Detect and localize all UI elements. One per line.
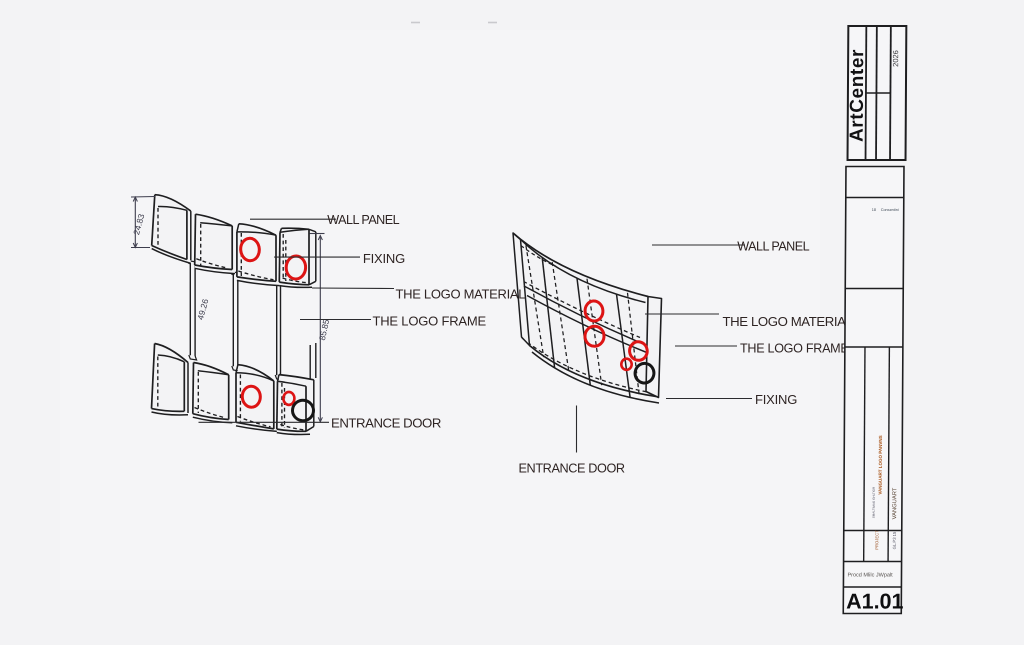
svg-text:SMALTIMAG GHLTIGR: SMALTIMAG GHLTIGR — [872, 486, 876, 518]
svg-text:GL.P3 15: GL.P3 15 — [892, 531, 897, 549]
svg-text:2026: 2026 — [891, 50, 900, 67]
svg-text:FIXING: FIXING — [363, 251, 405, 266]
svg-text:A1.01: A1.01 — [846, 590, 904, 614]
svg-text:ENTRANCE DOOR: ENTRANCE DOOR — [331, 415, 441, 430]
svg-text:THE LOGO MATERIAL: THE LOGO MATERIAL — [396, 286, 526, 301]
svg-text:WALL PANEL: WALL PANEL — [327, 213, 399, 227]
svg-text:THE LOGO MATERIAL: THE LOGO MATERIAL — [723, 314, 853, 329]
svg-text:18: 18 — [872, 208, 876, 212]
svg-text:ENTRANCE DOOR: ENTRANCE DOOR — [519, 462, 625, 476]
svg-text:THE LOGO FRAME: THE LOGO FRAME — [740, 342, 848, 356]
svg-text:Procd Mlilc JWpalt: Procd Mlilc JWpalt — [847, 573, 893, 579]
svg-text:VANGUART: VANGUART — [892, 487, 898, 519]
svg-text:THE LOGO FRAME: THE LOGO FRAME — [373, 313, 487, 328]
svg-text:Consentini: Consentini — [881, 208, 899, 212]
svg-text:FIXING: FIXING — [755, 392, 797, 407]
svg-text:PROJECT: PROJECT — [874, 530, 879, 550]
svg-text:ArtCenter: ArtCenter — [847, 49, 869, 142]
svg-text:WALL PANEL: WALL PANEL — [737, 240, 809, 254]
svg-text:VANGUART LOGO PANVNS: VANGUART LOGO PANVNS — [878, 435, 883, 494]
